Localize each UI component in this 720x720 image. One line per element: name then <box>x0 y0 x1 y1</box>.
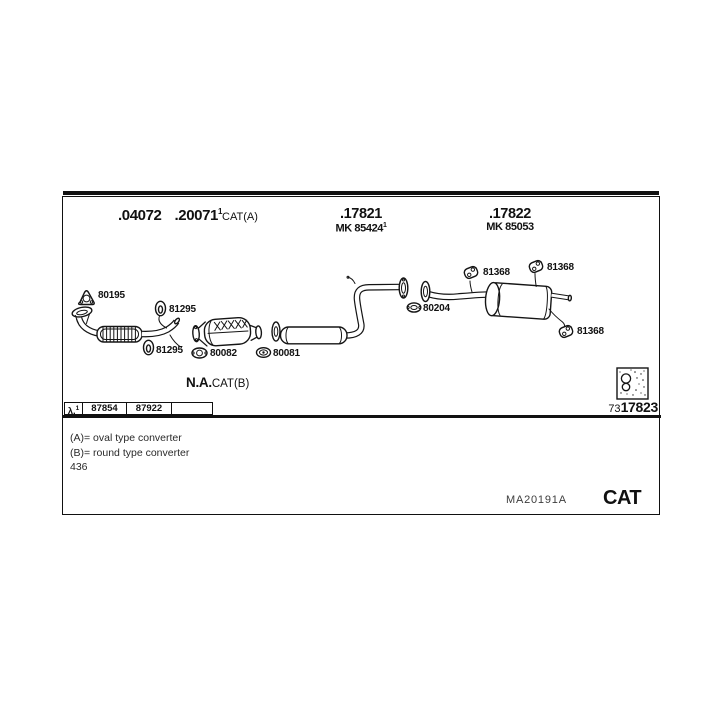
front-flange-gasket-icon <box>79 291 95 305</box>
part-number: .04072 <box>118 207 161 224</box>
mid-pipe-drawing <box>345 276 399 335</box>
hanger-symbol-icon <box>617 368 648 399</box>
reference-number: 7317823 <box>590 399 658 417</box>
resonator-drawing <box>272 322 347 344</box>
part-label-80204: 80204 <box>423 303 450 314</box>
lambda-cell: λ.1 <box>65 403 83 414</box>
sensor-number-cell: 87854 <box>83 403 127 414</box>
gasket-80204-icon <box>407 303 421 312</box>
footnote-b: (B)= round type converter <box>70 447 189 459</box>
na-label: N.A. <box>186 375 212 390</box>
hanger-ring-icon-bottom <box>144 340 154 354</box>
header-group-b: .17821 MK 854241 <box>328 207 394 234</box>
lambda-sup: 1 <box>76 405 80 412</box>
ref-prefix: 73 <box>608 403 620 415</box>
ref-main: 17823 <box>621 399 658 415</box>
page-number: 436 <box>70 461 88 473</box>
hanger-rod-1 <box>470 281 472 292</box>
part-label-81368-c: 81368 <box>577 326 604 337</box>
mid-pipe-flange-icon <box>399 278 408 298</box>
part-label-80082: 80082 <box>210 348 237 359</box>
rubber-mount-icon-2 <box>528 259 544 273</box>
header-group-c: .17822 MK 85053 <box>476 207 544 233</box>
empty-cell <box>172 403 212 414</box>
na-cat-note: N.A.CAT(B) <box>186 374 249 392</box>
hanger-rod-2 <box>535 274 536 287</box>
gasket-80081-icon <box>257 348 271 358</box>
rear-pipe-drawing <box>421 282 490 302</box>
hanger-rod-3 <box>549 309 565 328</box>
header-group-a: .04072 .200711CAT(A) <box>118 207 258 224</box>
footnote-a: (A)= oval type converter <box>70 432 182 444</box>
part-label-81368-b: 81368 <box>547 262 574 273</box>
hanger-ring-icon-top <box>156 301 167 328</box>
mk-number: MK 854241 <box>328 222 394 235</box>
gasket-80082-icon <box>192 348 207 358</box>
document-code: MA20191A <box>506 494 567 506</box>
part-label-81295-b: 81295 <box>156 345 183 356</box>
brand-logo: CAT <box>603 487 641 510</box>
converter-note: CAT(A) <box>222 211 258 223</box>
footnote-marker: 1 <box>383 222 387 229</box>
cat-b-note: CAT(B) <box>212 378 249 390</box>
part-label-81295-a: 81295 <box>169 304 196 315</box>
part-label-80081: 80081 <box>273 348 300 359</box>
exhaust-diagram <box>0 0 720 720</box>
rubber-mount-icon-3 <box>558 324 574 338</box>
part-label-81368-a: 81368 <box>483 267 510 278</box>
catalog-page: .04072 .200711CAT(A) .17821 MK 854241 .1… <box>0 0 720 720</box>
part-number: .17821 <box>328 207 394 222</box>
rubber-mount-icon-1 <box>463 265 479 279</box>
muffler-drawing <box>484 282 572 321</box>
sensor-number-cell: 87922 <box>127 403 172 414</box>
part-label-80195: 80195 <box>98 290 125 301</box>
catalytic-converter-drawing <box>192 316 262 347</box>
lambda-sensor-table: λ.1 87854 87922 <box>64 402 213 415</box>
part-number-with-note: .200711CAT(A) <box>174 207 257 224</box>
part-number: .17822 <box>476 207 544 222</box>
mk-number: MK 85053 <box>476 222 544 233</box>
